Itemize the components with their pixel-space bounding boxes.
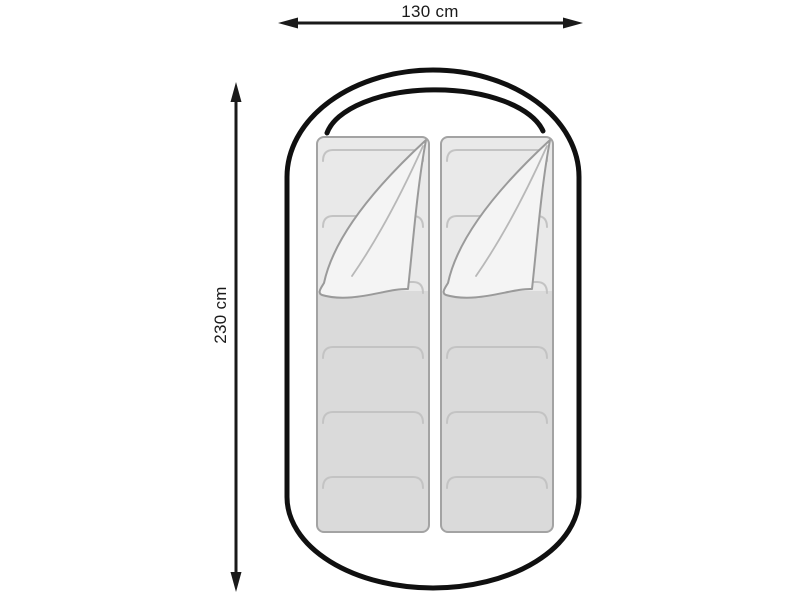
tent-dimension-diagram: 130 cm 230 cm: [0, 0, 800, 600]
sleeping-bag-left: [317, 137, 429, 532]
diagram-canvas: 130 cm 230 cm: [0, 0, 800, 600]
height-dimension-label: 230 cm: [211, 286, 230, 344]
arrowhead-left-icon: [278, 18, 298, 29]
arrowhead-up-icon: [231, 82, 242, 102]
arrowhead-right-icon: [563, 18, 583, 29]
arrowhead-down-icon: [231, 572, 242, 592]
height-dimension-arrow: 230 cm: [211, 82, 242, 592]
width-dimension-arrow: 130 cm: [278, 2, 583, 29]
tent-inner-arc: [327, 90, 543, 133]
width-dimension-label: 130 cm: [401, 2, 459, 21]
sleeping-bag-right: [441, 137, 553, 532]
